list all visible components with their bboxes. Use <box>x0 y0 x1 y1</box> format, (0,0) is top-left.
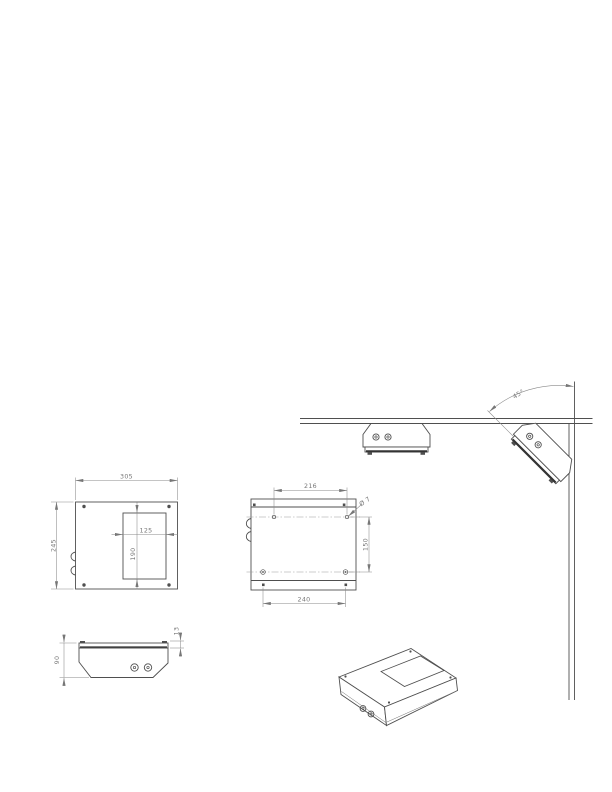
dim-label-plate-thickness: 13 <box>174 627 181 636</box>
dimension-width: 305 <box>76 474 178 501</box>
mounting-view: 216 240 150 Ø 7 <box>246 483 372 607</box>
isometric-view <box>339 649 458 726</box>
dim-label-cutout-height: 190 <box>130 548 137 561</box>
dimension-height: 245 <box>51 502 74 589</box>
dim-label-height: 245 <box>51 539 58 552</box>
front-view: 90 13 <box>54 627 184 686</box>
top-view: 305 245 125 190 <box>51 474 178 590</box>
angle-dimension-label: 45° <box>511 388 525 401</box>
dim-label-hole-diameter: Ø 7 <box>358 495 372 508</box>
top-view-outline <box>76 502 178 589</box>
drawing-page: 45° 305 245 <box>0 0 612 792</box>
mounting-view-outline <box>251 499 356 590</box>
edge-bumps <box>71 552 76 575</box>
dim-label-upper-holes: 216 <box>304 483 317 490</box>
technical-drawing: 45° 305 245 <box>0 0 612 792</box>
dim-label-width: 305 <box>120 474 133 481</box>
edge-bumps <box>246 519 251 542</box>
dimension-plate-thickness: 13 <box>170 627 184 657</box>
dim-label-lower-holes: 240 <box>298 597 311 604</box>
front-body <box>79 648 168 678</box>
dim-label-vertical-holes: 150 <box>363 538 370 551</box>
dim-label-cutout-width: 125 <box>140 528 153 535</box>
ceiling-mounted-unit <box>363 424 430 455</box>
dim-label-body-height: 90 <box>54 656 61 665</box>
corner-mounted-unit <box>508 418 578 488</box>
